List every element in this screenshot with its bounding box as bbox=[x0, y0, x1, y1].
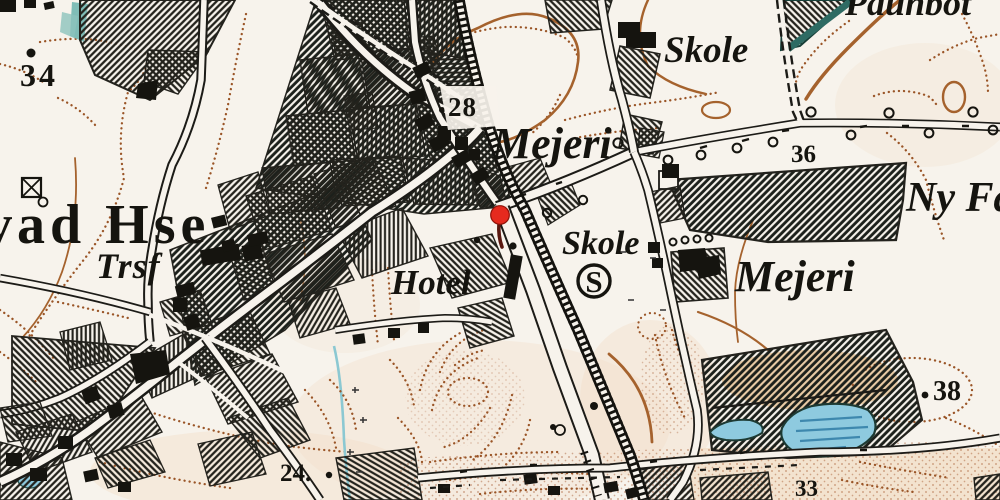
svg-text:Mejeri: Mejeri bbox=[734, 252, 856, 301]
svg-text:S: S bbox=[585, 264, 602, 299]
svg-text:Hotel: Hotel bbox=[390, 263, 471, 302]
svg-text:Skole: Skole bbox=[664, 30, 748, 71]
svg-text:38: 38 bbox=[933, 376, 961, 407]
svg-text:Ny Fæ: Ny Fæ bbox=[905, 175, 1000, 221]
svg-text:Trsf: Trsf bbox=[96, 246, 163, 286]
svg-text:34: 34 bbox=[20, 57, 58, 93]
svg-text:33: 33 bbox=[795, 476, 818, 500]
svg-text:28: 28 bbox=[448, 92, 477, 122]
svg-text:Skole: Skole bbox=[562, 225, 639, 262]
svg-text:36: 36 bbox=[791, 141, 816, 168]
svg-text:Paunbot: Paunbot bbox=[844, 0, 972, 23]
svg-text:24.: 24. bbox=[280, 460, 311, 487]
svg-text:Mejeri: Mejeri bbox=[491, 119, 613, 168]
